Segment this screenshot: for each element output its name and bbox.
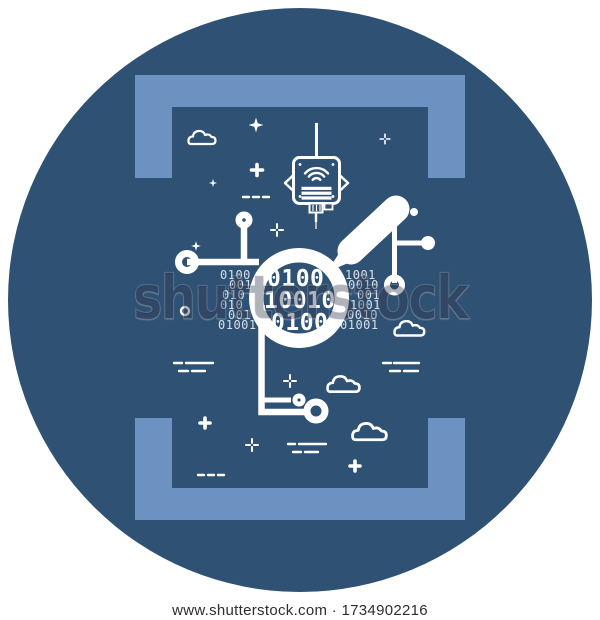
binary-row: 0100: [271, 310, 328, 336]
image-credit: www.shutterstock.com · 1734902216: [172, 602, 428, 619]
binary-code-magnified: 0100100100100: [0, 0, 600, 600]
stock-image-canvas: 0100001010010001010011001001000110010010…: [0, 0, 600, 600]
stock-image: 0100001010010001010011001001000110010010…: [0, 0, 600, 620]
caption-bar: www.shutterstock.com · 1734902216: [0, 600, 600, 620]
